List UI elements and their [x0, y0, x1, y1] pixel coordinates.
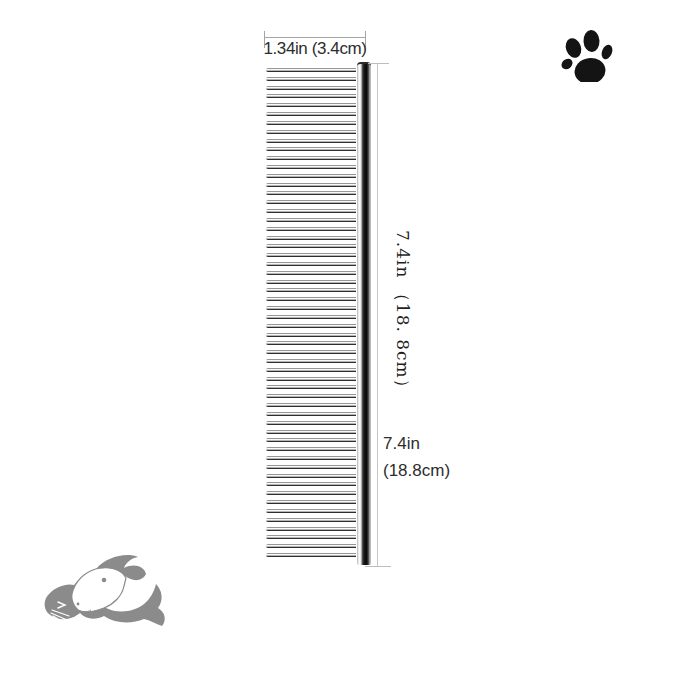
comb-tooth — [266, 209, 356, 213]
comb-tooth — [266, 465, 356, 469]
comb-tooth — [266, 165, 356, 169]
width-dimension-line — [264, 37, 366, 38]
length-dimension-tick-bottom — [365, 566, 391, 567]
comb-tooth — [266, 535, 356, 539]
comb-tooth — [266, 112, 356, 116]
comb-tooth — [266, 553, 356, 557]
comb-tooth — [266, 430, 356, 434]
comb-spine — [357, 62, 371, 565]
comb-tooth — [266, 333, 356, 337]
comb-tooth — [266, 288, 356, 292]
comb-tooth — [266, 350, 356, 354]
comb-tooth — [266, 544, 356, 548]
comb-tooth — [266, 385, 356, 389]
comb-tooth — [266, 341, 356, 345]
comb-tooth — [266, 236, 356, 240]
comb-tooth — [266, 482, 356, 486]
length-dimension-label-inches: 7.4in — [383, 430, 450, 457]
comb-tooth — [266, 456, 356, 460]
comb-tooth — [266, 500, 356, 504]
comb-tooth — [266, 509, 356, 513]
comb-tooth — [266, 262, 356, 266]
comb-tooth — [266, 324, 356, 328]
comb-tooth — [266, 527, 356, 531]
comb-tooth — [266, 191, 356, 195]
length-dimension-line — [377, 63, 378, 566]
comb-tooth — [266, 174, 356, 178]
comb-tooth — [266, 68, 356, 72]
length-dimension-label-cm: (18.8cm) — [383, 457, 450, 484]
comb-tooth — [266, 421, 356, 425]
comb-tooth — [266, 518, 356, 522]
width-dimension-label: 1.34in (3.4cm) — [256, 39, 374, 59]
paw-print-icon — [558, 20, 620, 82]
comb-tooth — [266, 147, 356, 151]
comb-tooth — [266, 403, 356, 407]
comb-tooth — [266, 130, 356, 134]
comb-tooth — [266, 218, 356, 222]
comb-tooth — [266, 271, 356, 275]
comb-tooth — [266, 94, 356, 98]
length-dimension-tick-top — [368, 63, 389, 64]
comb-tooth — [266, 121, 356, 125]
comb-tooth — [266, 280, 356, 284]
comb-tooth — [266, 377, 356, 381]
dog-cat-logo-icon — [38, 552, 178, 632]
comb-tooth — [266, 394, 356, 398]
comb-tooth — [266, 412, 356, 416]
comb-tooth — [266, 315, 356, 319]
length-dimension-label-vertical: 7.4in （18. 8cm） — [391, 230, 414, 400]
comb-tooth — [266, 297, 356, 301]
comb-tooth — [266, 244, 356, 248]
comb-tooth — [266, 438, 356, 442]
comb-tooth — [266, 200, 356, 204]
comb-tooth — [266, 368, 356, 372]
comb-tooth — [266, 227, 356, 231]
comb-tooth — [266, 103, 356, 107]
comb-tooth — [266, 183, 356, 187]
comb-tooth — [266, 474, 356, 478]
comb-tooth — [266, 156, 356, 160]
comb-tooth — [266, 447, 356, 451]
comb-tooth — [266, 253, 356, 257]
length-dimension-label: 7.4in (18.8cm) — [383, 430, 450, 484]
comb-tooth — [266, 139, 356, 143]
product-image: 1.34in (3.4cm) 7.4in （18. 8cm） 7.4in (18… — [0, 0, 679, 679]
comb-tooth — [266, 86, 356, 90]
comb-tooth — [266, 306, 356, 310]
comb-teeth — [266, 68, 356, 557]
comb-tooth — [266, 77, 356, 81]
comb-tooth — [266, 359, 356, 363]
comb-tooth — [266, 491, 356, 495]
